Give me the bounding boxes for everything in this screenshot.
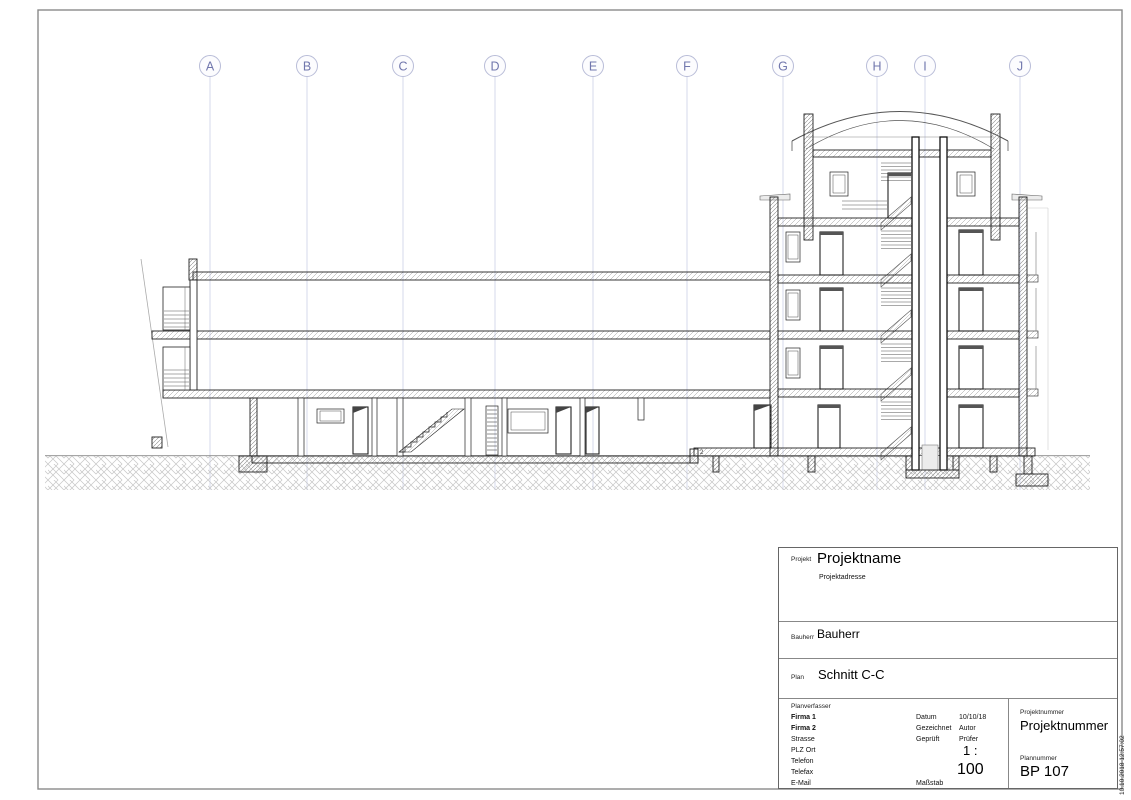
tower-stairs — [881, 163, 911, 460]
project-number-label: Projektnummer — [1020, 709, 1064, 716]
date-value: 10/10/18 — [959, 714, 986, 721]
client-label: Bauherr — [791, 634, 814, 641]
project-number-value: Projektnummer — [1020, 718, 1108, 733]
checked-label: Geprüft — [916, 736, 939, 743]
grid-label: G — [778, 60, 788, 74]
plan-number-label: Plannummer — [1020, 755, 1057, 762]
drawn-value: Autor — [959, 725, 976, 732]
grid-label: A — [206, 60, 215, 74]
basement-fittings — [317, 405, 771, 455]
plan-sheet: A B C D E F G H I J — [0, 0, 1131, 800]
title-block: Projekt Projektname Projektadresse Bauhe… — [778, 547, 1118, 789]
number-cell: Projektnummer Projektnummer Plannummer B… — [1008, 699, 1118, 788]
date-label: Datum — [916, 714, 937, 721]
project-label: Projekt — [791, 556, 811, 563]
author-line: E-Mail — [791, 780, 811, 787]
railing-lines — [842, 201, 887, 209]
author-line: Strasse — [791, 736, 815, 743]
grid-label: B — [303, 60, 311, 74]
drawn-label: Gezeichnet — [916, 725, 951, 732]
scale-label: Maßstab — [916, 780, 943, 787]
author-block-label: Planverfasser — [791, 703, 831, 710]
title-block-plan-row: Plan Schnitt C-C — [779, 658, 1117, 698]
title-block-client-row: Bauherr Bauherr — [779, 621, 1117, 658]
title-block-bottom-row: Planverfasser Firma 1 Firma 2 Strasse PL… — [779, 698, 1117, 788]
grid-label: I — [923, 60, 926, 74]
author-line: Telefax — [791, 769, 813, 776]
left-wing: 2 — [141, 163, 1035, 472]
grid-label: E — [589, 60, 597, 74]
author-line: Telefon — [791, 758, 814, 765]
author-line: Firma 2 — [791, 725, 816, 732]
client-name: Bauherr — [817, 627, 860, 641]
elevator-shaft — [906, 137, 959, 478]
plan-number-value: BP 107 — [1020, 763, 1069, 780]
plan-title: Schnitt C-C — [818, 667, 884, 682]
author-line: PLZ Ort — [791, 747, 816, 754]
tower — [713, 112, 1048, 487]
grid-label: J — [1017, 60, 1023, 74]
grid-label: H — [872, 60, 881, 74]
project-name: Projektname — [817, 550, 901, 567]
grid-label: D — [490, 60, 499, 74]
checked-value: Prüfer — [959, 736, 978, 743]
grid-label: F — [683, 60, 691, 74]
scale-prefix: 1 : — [963, 743, 977, 758]
print-timestamp: 10.10.2018 12:57:02 — [1119, 711, 1130, 795]
project-address: Projektadresse — [819, 574, 866, 581]
scale-value: 100 — [957, 761, 984, 779]
title-block-project-row: Projekt Projektname Projektadresse — [779, 548, 1117, 621]
grid-label: C — [398, 60, 407, 74]
author-line: Firma 1 — [791, 714, 816, 721]
balconies — [1027, 232, 1038, 396]
tower-doors — [818, 173, 983, 448]
plan-label: Plan — [791, 674, 804, 681]
